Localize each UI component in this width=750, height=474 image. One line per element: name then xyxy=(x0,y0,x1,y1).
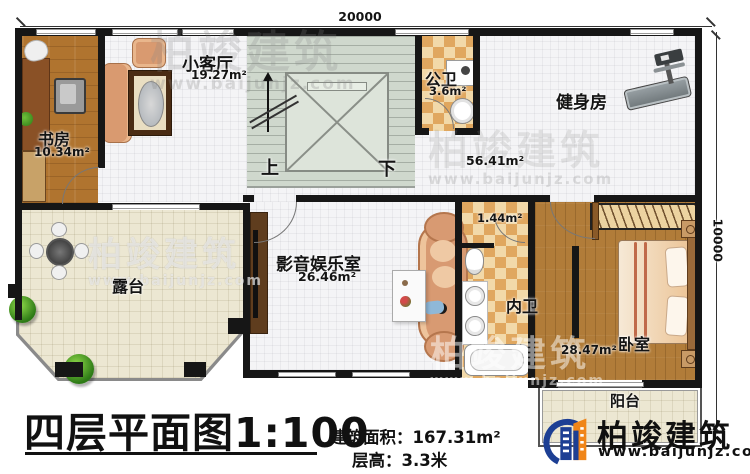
room-label-ensuite: 内卫 xyxy=(506,293,538,317)
wall-bedroom-bottom2 xyxy=(642,380,702,388)
brand-logo-icon xyxy=(543,413,595,469)
wall-gym-bottom2 xyxy=(594,195,702,202)
title-underline xyxy=(25,452,317,455)
patio-chair-n xyxy=(51,222,67,237)
stair-hall-boundary xyxy=(247,186,415,188)
media-window2 xyxy=(352,372,410,377)
armchair xyxy=(132,38,166,68)
balcony-door-window xyxy=(556,382,644,387)
wall-bath-bedroom xyxy=(528,202,535,378)
toilet-public xyxy=(450,98,475,124)
room-label-balcony: 阳台 xyxy=(610,390,640,411)
rug xyxy=(128,70,172,136)
room-label-gym: 健身房 xyxy=(556,88,607,113)
sofa-cushion xyxy=(430,240,456,262)
wall-terrace-right xyxy=(243,203,250,378)
terrace-sliding-door xyxy=(112,204,200,210)
wall-publicbath-right xyxy=(473,36,480,135)
wall-closet xyxy=(462,243,494,248)
elevator-shaft xyxy=(285,72,389,172)
wall-media-top2 xyxy=(296,195,462,202)
wall-left xyxy=(15,28,22,320)
patio-chair-e xyxy=(74,243,89,259)
wall-bedroom-bottom xyxy=(528,380,558,388)
faucet-dot xyxy=(461,66,470,75)
toilet-ensuite xyxy=(465,248,484,275)
wall-publicbath-bottom2 xyxy=(455,128,480,135)
room-area-study: 10.34m² xyxy=(34,145,90,159)
terrace-plant-icon xyxy=(9,296,36,323)
wall-right xyxy=(695,28,702,388)
room-label-terrace: 露台 xyxy=(112,273,144,297)
monitor-screen xyxy=(60,84,76,104)
window-top5 xyxy=(630,29,674,35)
terrace-pillar2 xyxy=(55,362,83,377)
brand-website: www.baijunjz.com xyxy=(598,444,750,460)
brand-logo: 柏竣建筑 www.baijunjz.com xyxy=(543,413,743,473)
room-area-media: 26.46m² xyxy=(298,269,356,284)
wall-media-right xyxy=(455,195,462,378)
wall-media-top xyxy=(243,195,254,202)
dimension-label-top: 20000 xyxy=(330,9,390,24)
wall-study-right xyxy=(98,36,105,168)
room-area-gym: 56.41m² xyxy=(466,153,524,168)
patio-table xyxy=(46,238,74,266)
stairs-down-label: 下 xyxy=(378,155,396,181)
stair-direction-arrow xyxy=(267,80,269,132)
wall-publicbath-bottom xyxy=(415,128,429,135)
window-top4 xyxy=(395,29,469,35)
pillow2 xyxy=(665,295,690,336)
closet-area-label: 1.44m² xyxy=(477,211,522,225)
terrace-pillar3 xyxy=(184,362,206,377)
patio-chair-w xyxy=(29,243,44,259)
page-title: 四层平面图1:100 xyxy=(24,399,370,459)
blanket-stripe xyxy=(634,242,637,340)
window-top1 xyxy=(36,29,96,35)
wall-publicbath-left xyxy=(415,36,422,135)
patio-chair-s xyxy=(51,265,67,280)
dimension-line-top xyxy=(20,26,712,27)
blanket-stripe2 xyxy=(644,242,647,340)
wall-gym-bottom xyxy=(455,195,550,202)
floor-plan-page: 柏竣建筑 www.baijunjz.com 柏竣建筑 www.baijunjz.… xyxy=(0,0,750,474)
table-item xyxy=(402,280,408,286)
stair-arrow-head xyxy=(263,72,273,81)
room-label-bedroom: 卧室 xyxy=(618,331,650,355)
building-area-text: 建筑面积：167.31m² xyxy=(330,424,501,448)
bathtub xyxy=(464,344,530,376)
coffee-table xyxy=(392,270,426,322)
floor-height-text: 层高：3.3米 xyxy=(352,447,447,471)
pillow xyxy=(665,246,690,287)
room-area-public-bath: 3.6m² xyxy=(429,84,466,98)
sink-basin xyxy=(465,286,485,306)
dimension-label-right: 10000 xyxy=(711,219,726,261)
table-flowers xyxy=(400,296,411,307)
tv-screen xyxy=(253,230,258,318)
window-top2 xyxy=(112,29,178,35)
room-area-small-living: 19.27m² xyxy=(191,68,247,82)
bedroom-tv xyxy=(572,246,579,338)
stairs-up-label: 上 xyxy=(261,154,279,180)
sink-basin2 xyxy=(465,316,485,336)
room-area-bedroom: 28.47m² xyxy=(561,343,617,357)
media-window1 xyxy=(278,372,336,377)
window-top3 xyxy=(182,29,234,35)
